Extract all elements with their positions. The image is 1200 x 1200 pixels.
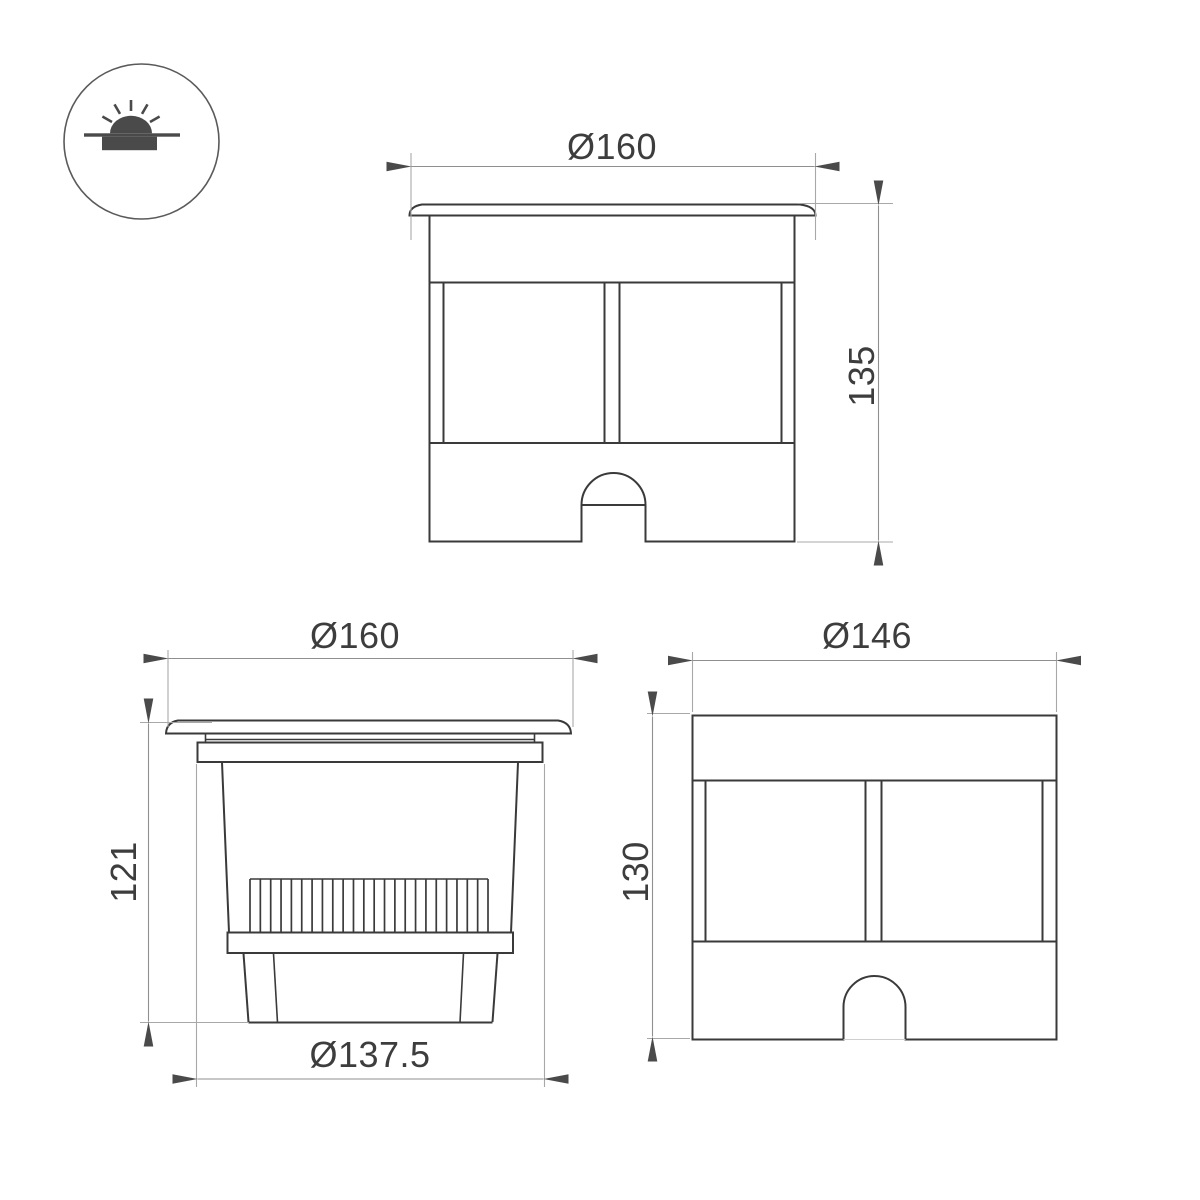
front-width-dim-label: Ø160	[567, 126, 657, 167]
side-view-drawing: Ø160 121 Ø137.5	[103, 615, 573, 1087]
flange-outline	[166, 721, 571, 734]
flange-outline	[410, 205, 816, 216]
housing-right-wall	[493, 954, 498, 1023]
front-view-drawing: Ø160 135	[410, 126, 894, 542]
icon-lamp-body	[102, 137, 157, 151]
bucket-right-wall	[511, 763, 518, 933]
side-width-dim-label: Ø160	[310, 615, 400, 656]
rear-height-dim-label: 130	[615, 841, 656, 903]
collar-ring	[198, 743, 543, 763]
front-height-dim-label: 135	[841, 345, 882, 407]
bucket-left-wall	[222, 763, 229, 933]
base-plate	[228, 933, 514, 954]
technical-drawing-canvas: Ø160 135 Ø160 121 Ø137.5	[0, 0, 1200, 1200]
housing-right-step	[460, 954, 464, 1023]
side-bottom-width-dim-label: Ø137.5	[309, 1034, 430, 1075]
rear-view-drawing: Ø146 130	[615, 615, 1057, 1040]
rear-width-dim-label: Ø146	[822, 615, 912, 656]
icon-ground-line	[84, 133, 180, 136]
recessed-in-ground-light-icon	[64, 64, 219, 219]
heatsink-fins	[250, 879, 488, 932]
side-height-dim-label: 121	[103, 841, 144, 903]
housing-left-wall	[244, 954, 249, 1023]
body-outline	[693, 716, 1057, 1040]
housing-left-step	[274, 954, 278, 1023]
body-outline	[430, 216, 795, 542]
